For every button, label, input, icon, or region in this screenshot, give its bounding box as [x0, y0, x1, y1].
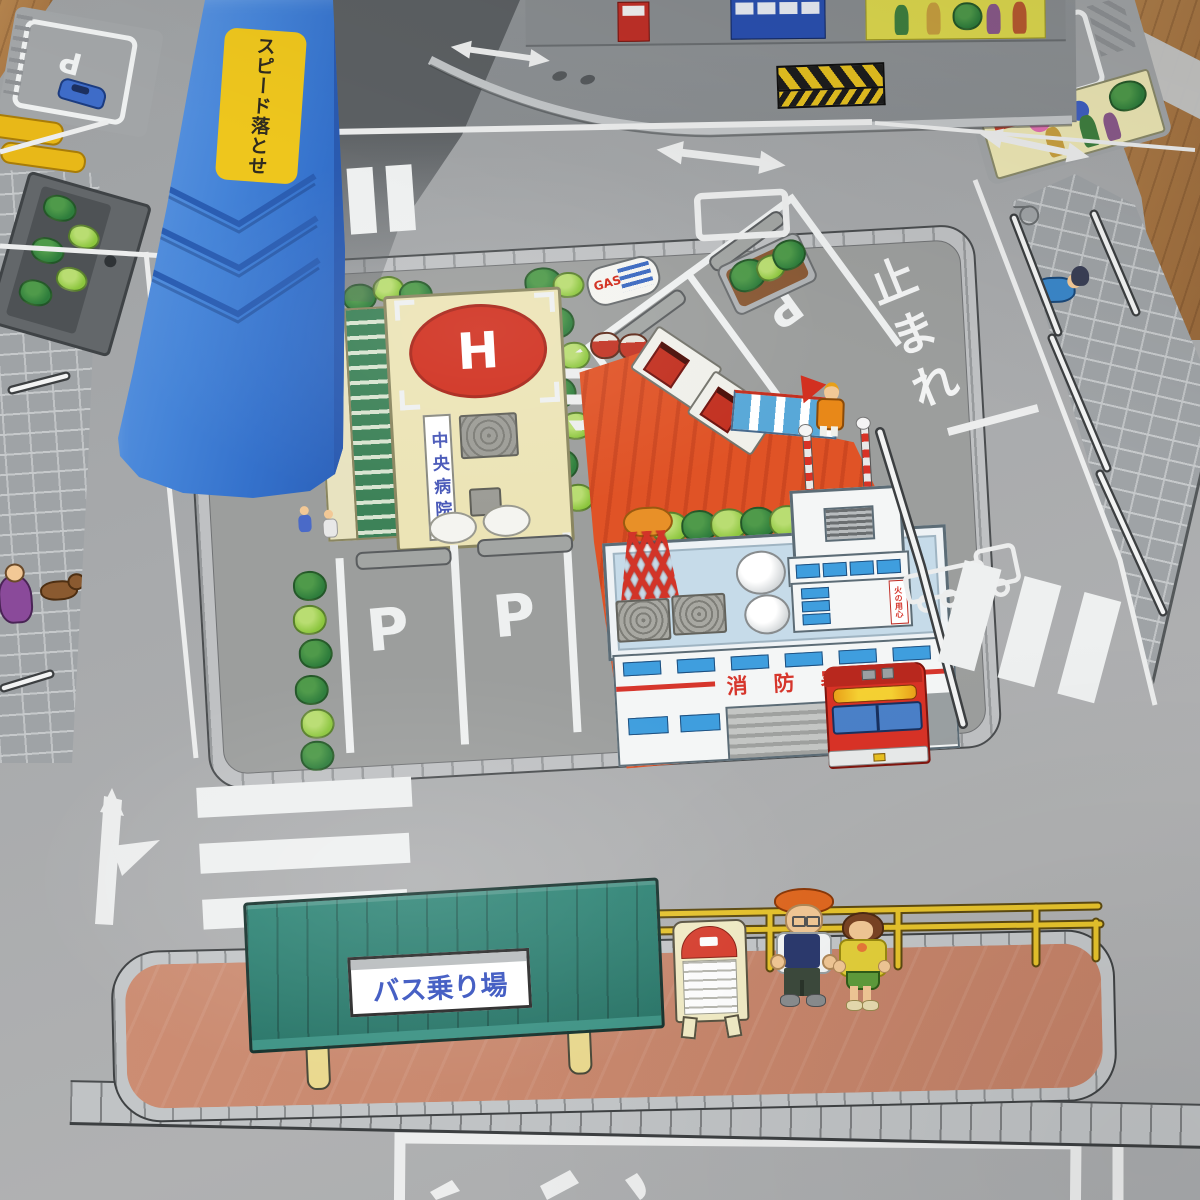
woman-hand — [833, 960, 846, 973]
man-vest — [784, 934, 820, 968]
man-pants — [784, 968, 820, 996]
board-body — [672, 919, 750, 1024]
timetable-board — [672, 919, 748, 1036]
woman-collar — [857, 943, 867, 952]
board-arch-label — [700, 937, 718, 947]
schedule-panel — [682, 959, 738, 1015]
board-leg — [681, 1016, 698, 1039]
bus-stop-man — [770, 888, 834, 1010]
bus-stop-sign: バス乗り場 — [347, 948, 532, 1017]
woman-face — [849, 921, 873, 940]
man-glasses — [792, 916, 806, 927]
bus-stop-sign-label: バス乗り場 — [371, 963, 508, 1013]
playmat-photo: 消火栓 P P — [0, 0, 1200, 1200]
man-glasses — [806, 916, 820, 927]
board-arch — [680, 925, 737, 959]
pants-split — [800, 980, 804, 996]
ramp-warning-sticker: スピード落とせ — [215, 27, 307, 184]
woman-shoe — [846, 1000, 863, 1011]
bus-shelter: バス乗り場 — [243, 881, 663, 1051]
woman-shoe — [862, 1000, 879, 1011]
ramp-warning-label: スピード落とせ — [243, 35, 280, 177]
man-shoe — [780, 994, 800, 1007]
man-shoe — [806, 994, 826, 1007]
bus-stop-woman — [836, 912, 886, 1010]
